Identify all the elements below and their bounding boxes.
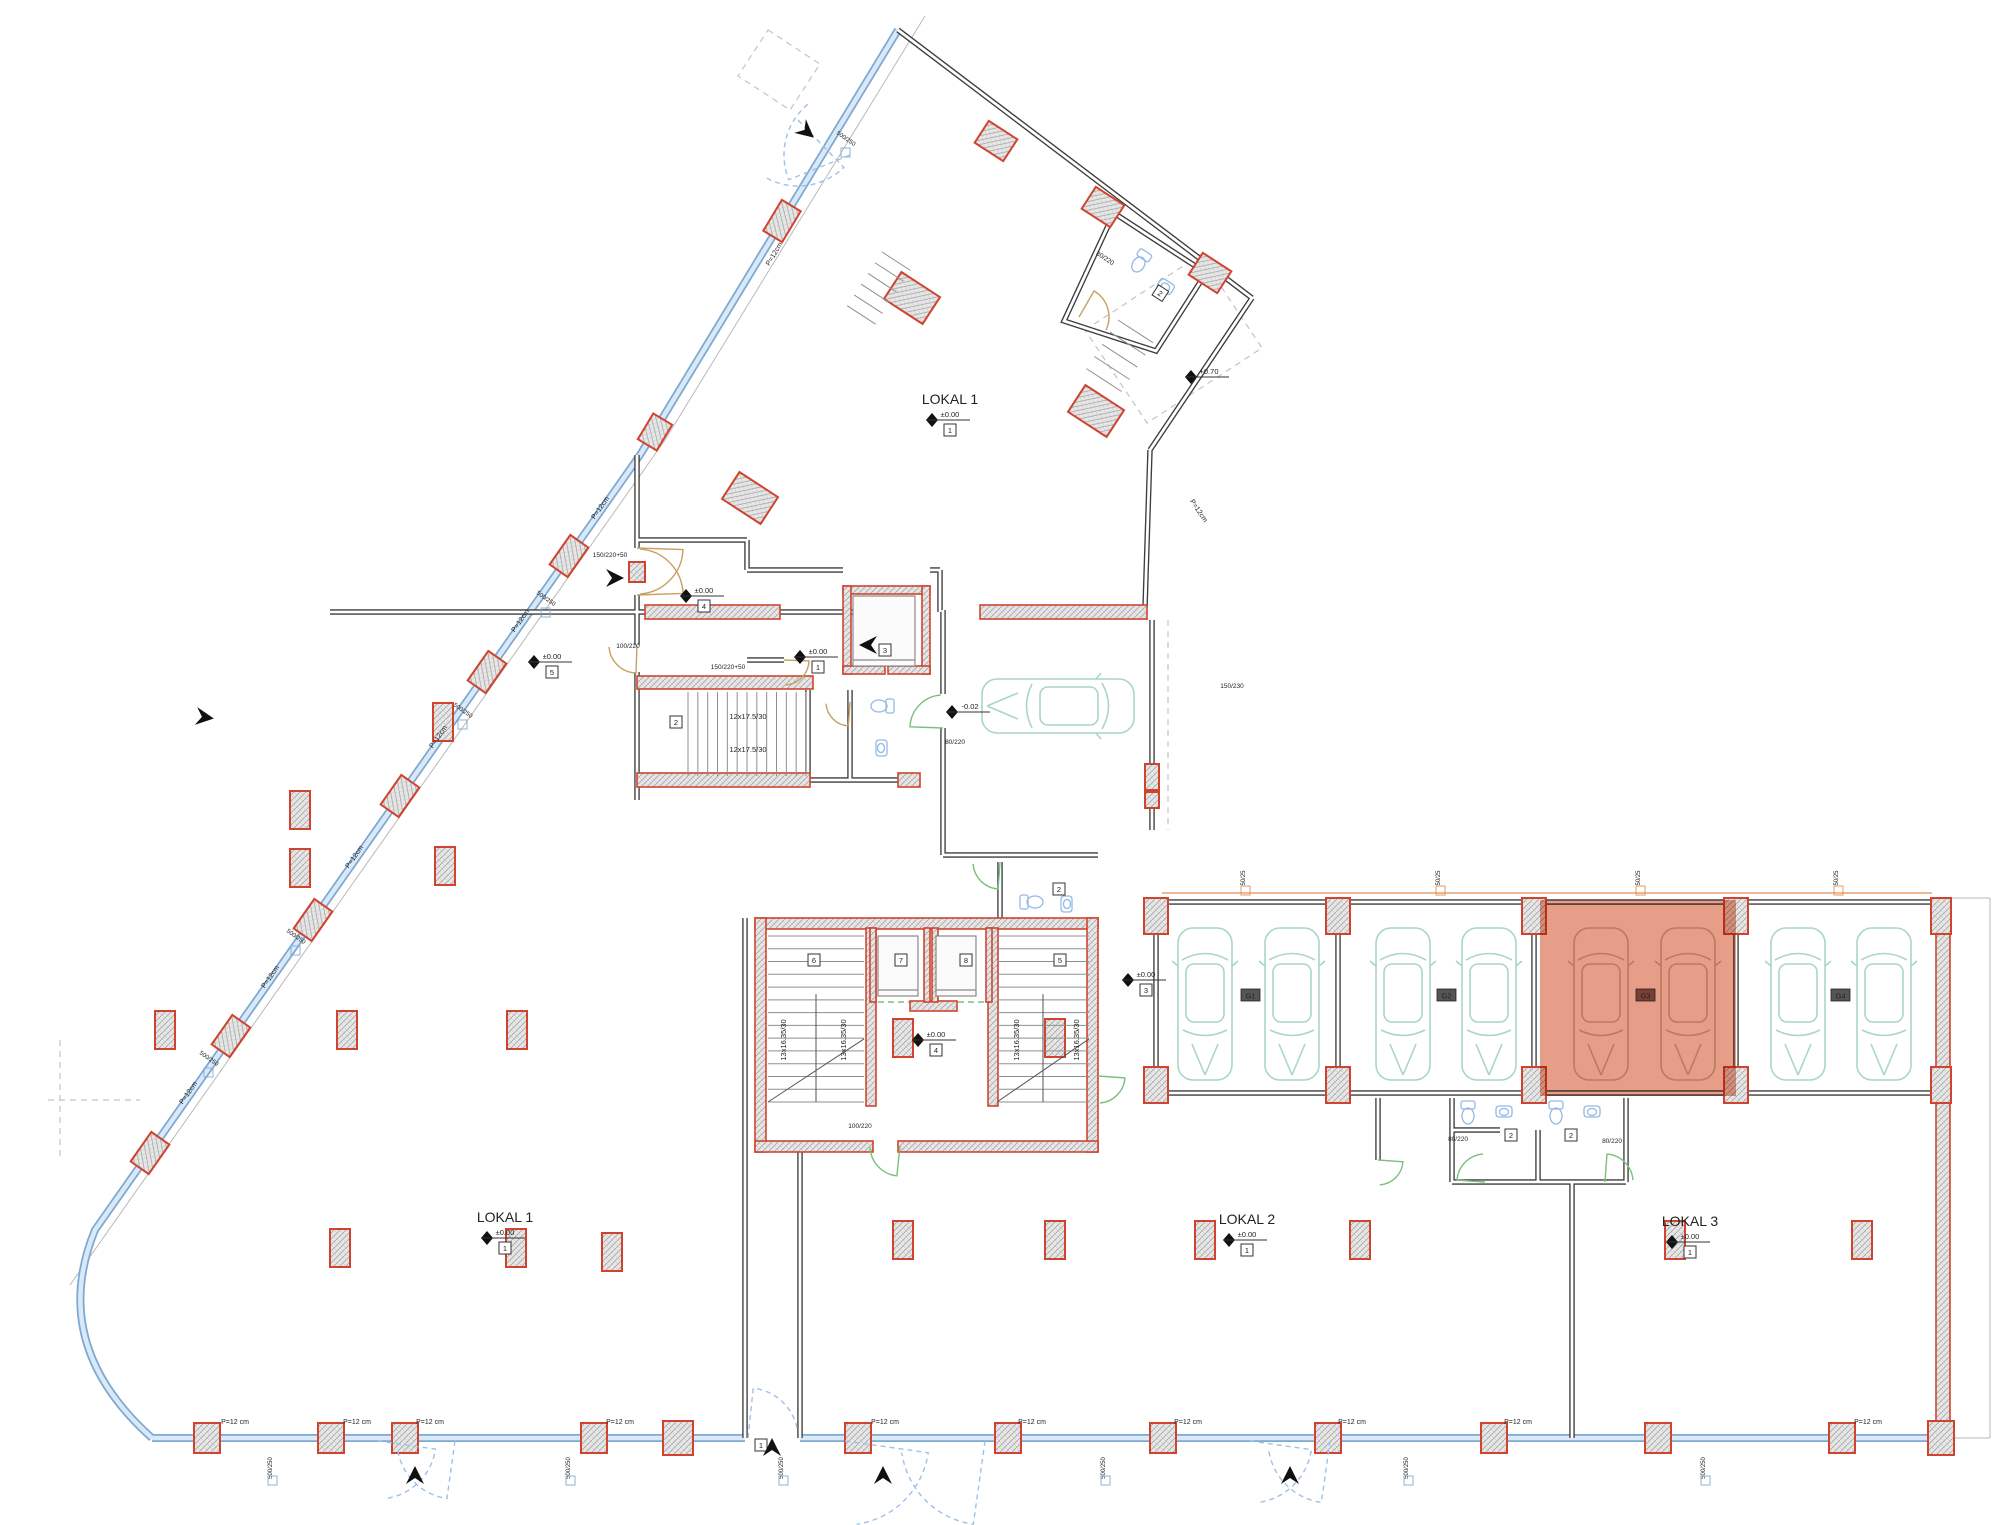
door-swing	[902, 1441, 985, 1524]
car	[1259, 928, 1325, 1080]
window-dimension-label: 500/250	[1101, 1457, 1107, 1479]
car-roof	[1384, 964, 1422, 1022]
floorplan-page: { "plan": { "colors": { "wall": "#3d3d3d…	[0, 0, 2000, 1525]
door-swing	[870, 1146, 900, 1176]
column	[435, 847, 455, 885]
car	[1765, 928, 1831, 1080]
room-number: 1	[948, 426, 952, 435]
door-dimension-label: 100/220	[616, 643, 640, 650]
stair-dimension-label: 13x16.35/30	[1012, 1019, 1021, 1060]
car-rear	[1370, 961, 1436, 1075]
elevation-value: ±0.00	[1137, 970, 1156, 979]
elevation-value: +0.70	[1200, 367, 1219, 376]
car	[1456, 928, 1522, 1080]
column	[581, 1423, 607, 1453]
column	[155, 1011, 175, 1049]
door-swing	[1457, 1154, 1485, 1182]
column	[1068, 385, 1124, 437]
door-swing	[1098, 1076, 1125, 1103]
column	[290, 849, 310, 887]
column	[722, 472, 778, 524]
entrance-arrow	[406, 1466, 424, 1484]
room-mark: ±0.001	[1223, 1230, 1267, 1256]
structural-wall	[898, 1141, 1098, 1152]
sink-icon	[1584, 1106, 1600, 1117]
car-roof	[1470, 964, 1508, 1022]
column	[893, 1221, 913, 1259]
column	[845, 1423, 871, 1453]
elevation-value: ±0.00	[809, 647, 828, 656]
door-swing	[973, 862, 1000, 889]
door-swing	[765, 120, 844, 186]
wall-thickness-label: P=12 cm	[416, 1419, 444, 1426]
elevation-value: ±0.00	[927, 1030, 946, 1039]
room-number: 4	[702, 602, 706, 611]
door-dimension-label: 150/230	[1220, 683, 1244, 690]
door-swing	[826, 702, 850, 726]
room-number: 1	[759, 1441, 763, 1450]
column	[1481, 1423, 1507, 1453]
entrance-arrow	[1281, 1466, 1299, 1484]
structural-wall	[843, 586, 930, 594]
lokal-1-upper-title: LOKAL 1	[922, 391, 979, 407]
window-dimension-label: 500/250	[268, 1457, 274, 1479]
door-swing	[910, 695, 943, 728]
structural-wall	[755, 918, 766, 1152]
car-roof	[1779, 964, 1817, 1022]
car-rear	[987, 673, 1101, 739]
car	[1370, 928, 1436, 1080]
column	[602, 1233, 622, 1271]
sink-bowl	[1500, 1109, 1509, 1116]
window-dimension-label: 500/250	[566, 1457, 572, 1479]
car-windshield	[1380, 954, 1426, 961]
wall-thickness-label: P=12 cm	[1854, 1419, 1882, 1426]
column	[884, 272, 940, 324]
column	[975, 121, 1018, 161]
column	[663, 1421, 693, 1455]
toilet-bowl	[1462, 1108, 1474, 1124]
column	[194, 1423, 220, 1453]
glazed-walls	[80, 30, 1938, 1438]
car-roof	[1273, 964, 1311, 1022]
room-number: 2	[1057, 885, 1061, 894]
wall-thickness-label: P=12 cm	[1174, 1419, 1202, 1426]
room-marks: ±0.004±0.001±0.005±0.003±0.004+0.70-0.02…	[481, 285, 1710, 1451]
car-rear	[1259, 961, 1325, 1075]
doors	[378, 103, 1633, 1524]
room-number: 5	[550, 668, 554, 677]
room-number: 2	[674, 718, 678, 727]
toilet-bowl	[1027, 896, 1043, 908]
structural-wall	[922, 586, 930, 674]
car-rear	[1172, 961, 1238, 1075]
garage-stall-label: G3	[1640, 992, 1650, 1001]
door-dimension-label: 80/220	[1602, 1138, 1622, 1145]
structural-wall	[637, 773, 810, 787]
structural-wall	[980, 605, 1147, 619]
elevation-value: ±0.00	[496, 1228, 515, 1237]
column	[1645, 1423, 1671, 1453]
column	[1144, 1067, 1168, 1103]
column	[1829, 1423, 1855, 1453]
toilet-bowl	[1129, 255, 1148, 275]
car-windshield	[1466, 954, 1512, 961]
structural-wall	[924, 928, 930, 1002]
room-mark: ±0.001	[794, 647, 838, 673]
window-dimension-label: 500/250	[1404, 1457, 1410, 1479]
structural-wall	[1087, 918, 1098, 1152]
room-number: 3	[1144, 986, 1148, 995]
structural-wall	[870, 928, 876, 1002]
wall-thickness-label: P=12 cm	[1338, 1419, 1366, 1426]
column	[290, 791, 310, 829]
door-dimension-label: 100/220	[848, 1123, 872, 1130]
lokal-2-title: LOKAL 2	[1219, 1211, 1276, 1227]
room-mark: 8	[960, 954, 972, 966]
columns	[131, 121, 1954, 1455]
room-number: 7	[899, 956, 903, 965]
car	[982, 673, 1134, 739]
entrance-arrow	[606, 569, 624, 587]
toilet-bowl	[871, 700, 887, 712]
toilet-icon	[1461, 1101, 1475, 1124]
wall-thickness-label: P=12cm	[1188, 498, 1208, 524]
structural-wall	[986, 928, 992, 1002]
elevation-value: ±0.00	[1238, 1230, 1257, 1239]
door-dimension-label: 80/220	[1448, 1136, 1468, 1143]
wall-thickness-label: P=12 cm	[606, 1419, 634, 1426]
room-mark: 1	[755, 1439, 767, 1451]
room-number: 2	[1569, 1131, 1573, 1140]
floor-plan-drawing: 12x17.5/3012x17.5/3013x16.35/3013x16.35/…	[0, 0, 2000, 1525]
car-roof	[1865, 964, 1903, 1022]
sink-icon	[1061, 896, 1072, 912]
car-windshield	[1775, 954, 1821, 961]
structural-wall	[898, 773, 920, 787]
door-swing	[1079, 291, 1109, 330]
toilet-bowl	[1550, 1108, 1562, 1124]
structural-walls	[637, 586, 1950, 1443]
wall-thickness-label: P=12 cm	[871, 1419, 899, 1426]
toilet-tank	[1136, 248, 1152, 262]
entrance-arrow	[195, 707, 215, 727]
column	[1350, 1221, 1370, 1259]
stair-flight	[997, 936, 1089, 1102]
room-mark: 2	[670, 716, 682, 728]
garage-stall-label: G2	[1441, 992, 1451, 1001]
sink-bowl	[1588, 1109, 1597, 1116]
door-swing	[1378, 1160, 1403, 1185]
column	[1315, 1423, 1341, 1453]
stair-dimension-label: 13x16.35/30	[1072, 1019, 1081, 1060]
column	[1326, 1067, 1350, 1103]
room-number: 5	[1058, 956, 1062, 965]
elevation-value: ±0.00	[941, 410, 960, 419]
annotations: 12x17.5/3012x17.5/3013x16.35/3013x16.35/…	[178, 130, 1882, 1485]
column	[337, 1011, 357, 1049]
room-mark: 6	[808, 954, 820, 966]
toilet-icon	[871, 699, 894, 713]
car-rear	[1765, 961, 1831, 1075]
entrance-arrow	[794, 119, 819, 144]
structural-wall	[645, 605, 780, 619]
lokal-3-title: LOKAL 3	[1662, 1213, 1719, 1229]
wall-thickness-label: P=12 cm	[343, 1419, 371, 1426]
room-mark: ±0.005	[528, 652, 572, 678]
car-windshield	[1861, 954, 1907, 961]
room-mark: +0.70	[1185, 367, 1229, 384]
structural-wall	[1936, 898, 1950, 1443]
elevation-value: ±0.00	[1681, 1232, 1700, 1241]
column	[1931, 898, 1951, 934]
wall-thickness-label: P=12 cm	[221, 1419, 249, 1426]
toilet-icon	[1549, 1101, 1563, 1124]
sink-icon	[1496, 1106, 1512, 1117]
structural-wall	[755, 1141, 873, 1152]
wall-thickness-label: P=12 cm	[1018, 1419, 1046, 1426]
car-roof	[1186, 964, 1224, 1022]
structural-wall	[843, 586, 851, 674]
car-windshield	[1182, 954, 1228, 961]
door-dimension-label: 150/220+50	[593, 552, 628, 559]
structural-wall	[888, 666, 930, 674]
window-dimension-label: 50/25	[1834, 870, 1840, 886]
column	[1082, 187, 1125, 227]
room-mark: ±0.003	[1122, 970, 1166, 996]
window-dimension-label: 50/25	[1241, 870, 1247, 886]
door-dimension-label: 80/220	[945, 739, 965, 746]
elevation-value: ±0.00	[695, 586, 714, 595]
entrance-arrow	[874, 1466, 892, 1484]
window-dimension-label: 500/250	[779, 1457, 785, 1479]
room-mark: 2	[1505, 1129, 1517, 1141]
room-mark: 5	[1054, 954, 1066, 966]
structural-wall	[843, 666, 885, 674]
column	[1928, 1421, 1954, 1455]
car	[1851, 928, 1917, 1080]
stair-dimension-label: 13x16.35/30	[839, 1019, 848, 1060]
room-number: 6	[812, 956, 816, 965]
elevation-value: -0.02	[961, 702, 978, 711]
column	[1145, 792, 1159, 808]
room-mark: 2	[1053, 883, 1065, 895]
sink-icon	[876, 740, 887, 756]
stair-dimension-label: 13x16.35/30	[779, 1019, 788, 1060]
toilet-icon	[1020, 895, 1043, 909]
room-mark: 2	[1565, 1129, 1577, 1141]
stair-flight	[688, 692, 806, 776]
lokal-1-lower-title: LOKAL 1	[477, 1209, 534, 1225]
room-number: 3	[883, 646, 887, 655]
column	[1144, 898, 1168, 934]
room-mark: ±0.004	[912, 1030, 956, 1056]
toilet-icon	[1128, 248, 1152, 275]
column	[1145, 764, 1159, 790]
door-dimension-label: 80/220	[1095, 250, 1116, 267]
column	[893, 1019, 913, 1057]
stair-treads	[688, 692, 806, 776]
car-rear	[1851, 961, 1917, 1075]
column	[1195, 1221, 1215, 1259]
column	[507, 1011, 527, 1049]
column	[1150, 1423, 1176, 1453]
car-rear	[1456, 961, 1522, 1075]
column	[1852, 1221, 1872, 1259]
column	[330, 1229, 350, 1267]
column	[1931, 1067, 1951, 1103]
wall-thickness-label: P=12 cm	[1504, 1419, 1532, 1426]
column	[629, 562, 645, 582]
garage-stall-label: G4	[1835, 992, 1845, 1001]
room-number: 4	[934, 1046, 938, 1055]
garage-stall-label: G1	[1245, 992, 1255, 1001]
car-windshield	[1269, 954, 1315, 961]
room-mark: 2	[1152, 285, 1169, 302]
structural-wall	[637, 676, 813, 689]
cars	[982, 673, 1917, 1080]
sink-bowl	[1064, 900, 1071, 909]
stair-dimension-label: 12x17.5/30	[729, 712, 766, 721]
room-mark: 7	[895, 954, 907, 966]
elevation-value: ±0.00	[543, 652, 562, 661]
car	[1172, 928, 1238, 1080]
window-dimension-label: 50/25	[1636, 870, 1642, 886]
door-dimension-label: 150/220+50	[711, 664, 746, 671]
room-number: 1	[1688, 1248, 1692, 1257]
door-swing	[748, 1388, 798, 1438]
column	[995, 1423, 1021, 1453]
room-number: 2	[1509, 1131, 1513, 1140]
column	[1045, 1221, 1065, 1259]
sink-bowl	[878, 744, 885, 753]
room-number: 1	[503, 1244, 507, 1253]
room-number: 8	[964, 956, 968, 965]
stair-dimension-label: 12x17.5/30	[729, 745, 766, 754]
car-roof	[1040, 687, 1098, 725]
column	[392, 1423, 418, 1453]
window-dimension-label: 500/250	[1701, 1457, 1707, 1479]
room-number: 1	[1245, 1246, 1249, 1255]
column	[1326, 898, 1350, 934]
room-mark: ±0.001	[926, 410, 970, 436]
room-mark: 3	[879, 644, 891, 656]
window-dimension-label: 50/25	[1436, 870, 1442, 886]
door-swing	[1250, 1441, 1311, 1502]
car-windshield	[1102, 683, 1109, 729]
room-number: 1	[816, 663, 820, 672]
room-mark: -0.02	[946, 702, 990, 719]
column	[318, 1423, 344, 1453]
